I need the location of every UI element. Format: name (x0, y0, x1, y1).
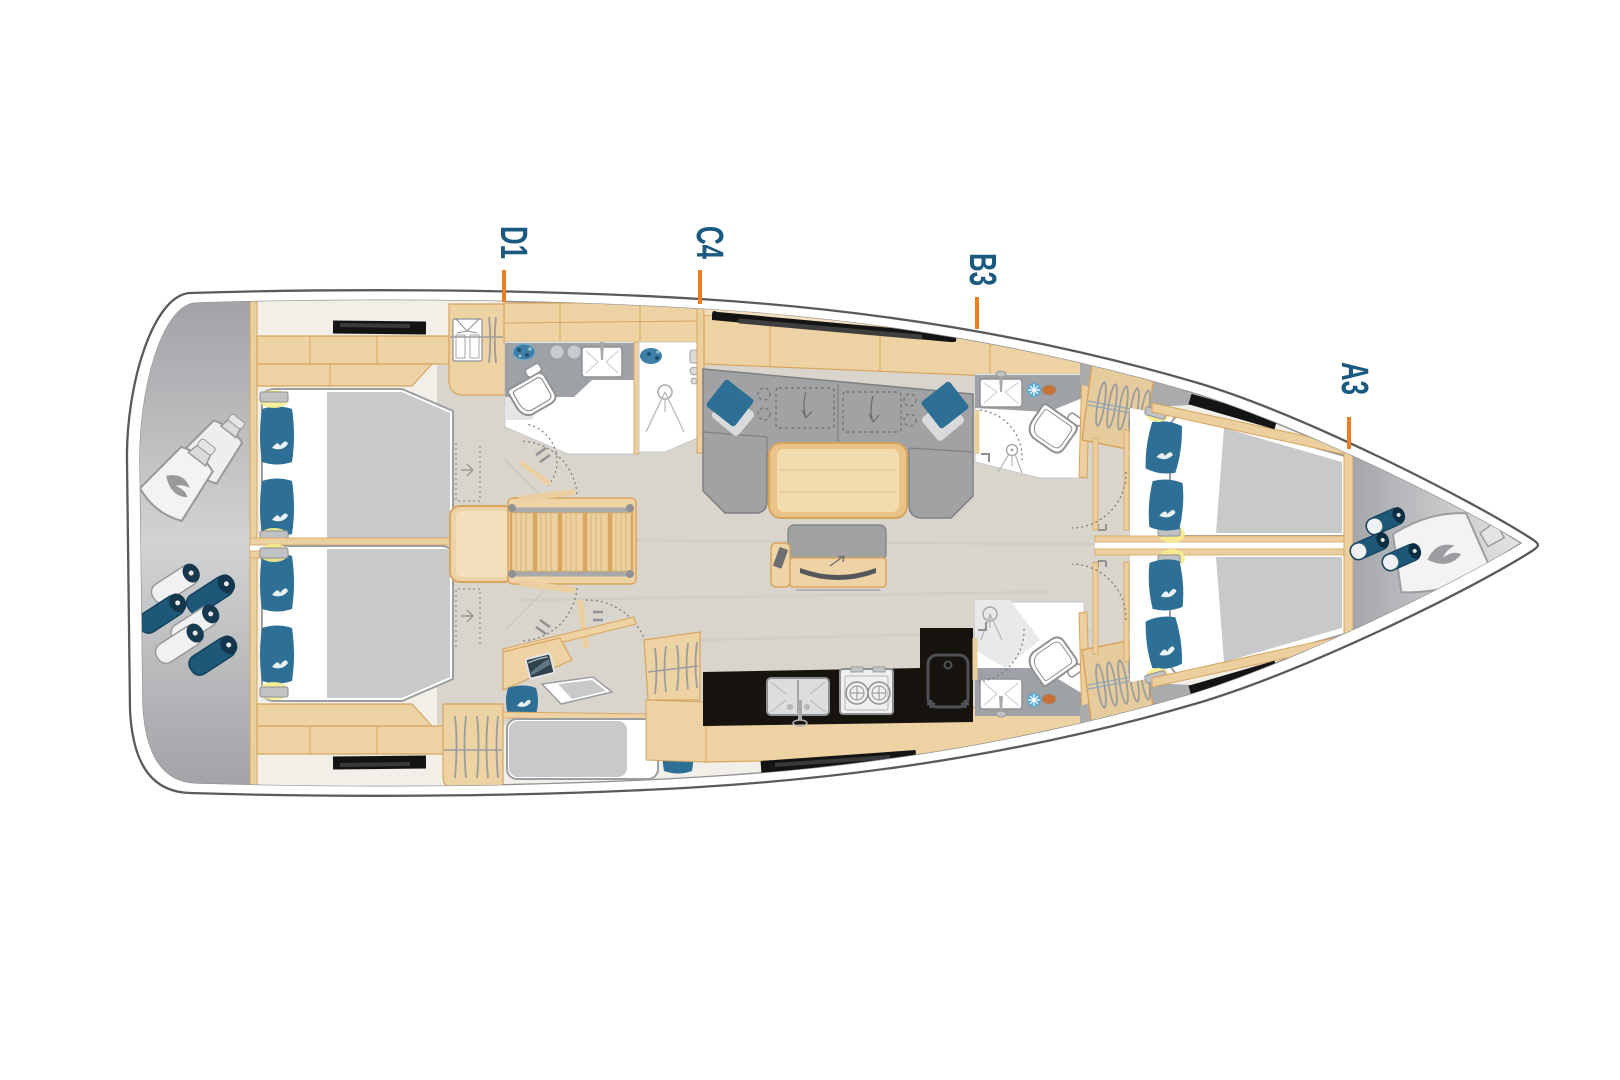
svg-text:B3: B3 (961, 253, 1003, 286)
svg-text:A3: A3 (1333, 362, 1375, 395)
svg-text:D1: D1 (492, 226, 534, 259)
svg-text:C4: C4 (688, 226, 730, 259)
